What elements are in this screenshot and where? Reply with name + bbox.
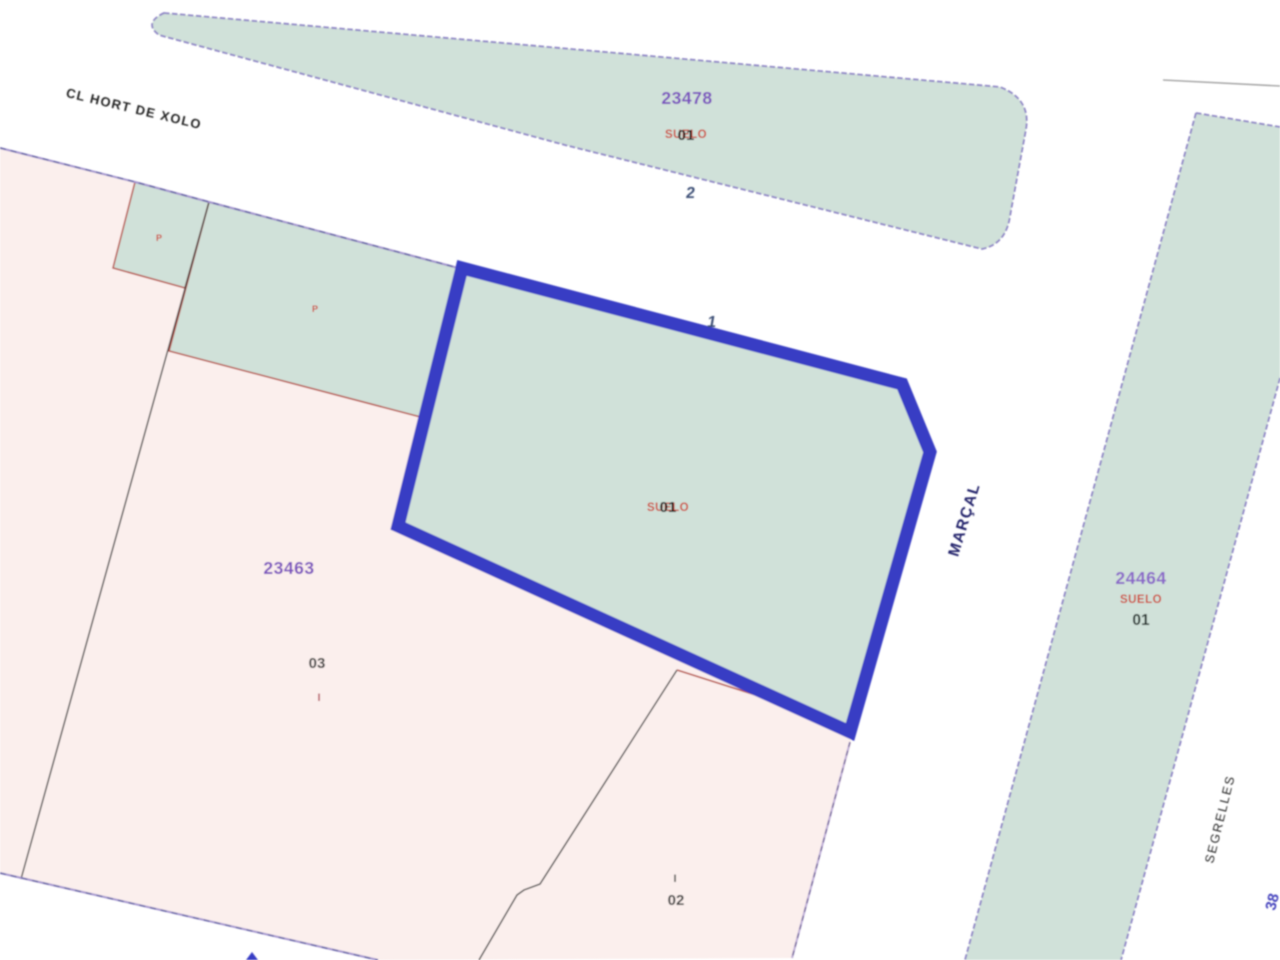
svg-text:03: 03: [309, 655, 326, 672]
svg-text:P: P: [156, 233, 162, 243]
svg-text:23463: 23463: [263, 558, 314, 578]
svg-text:SUELO: SUELO: [1120, 594, 1162, 606]
svg-text:01: 01: [678, 127, 695, 144]
svg-text:P: P: [312, 304, 318, 314]
svg-text:24464: 24464: [1115, 568, 1166, 588]
svg-text:01: 01: [1132, 612, 1150, 629]
svg-text:38: 38: [1262, 892, 1280, 912]
svg-text:I: I: [673, 873, 676, 885]
svg-text:02: 02: [668, 892, 685, 909]
svg-text:CL HORT DE XOLO: CL HORT DE XOLO: [65, 85, 204, 132]
svg-text:2: 2: [685, 184, 696, 202]
svg-text:I: I: [317, 692, 320, 704]
svg-text:SEGRELLES: SEGRELLES: [1202, 773, 1237, 864]
svg-text:MARÇAL: MARÇAL: [945, 481, 984, 559]
svg-text:23478: 23478: [661, 88, 712, 108]
svg-text:01: 01: [660, 499, 677, 516]
